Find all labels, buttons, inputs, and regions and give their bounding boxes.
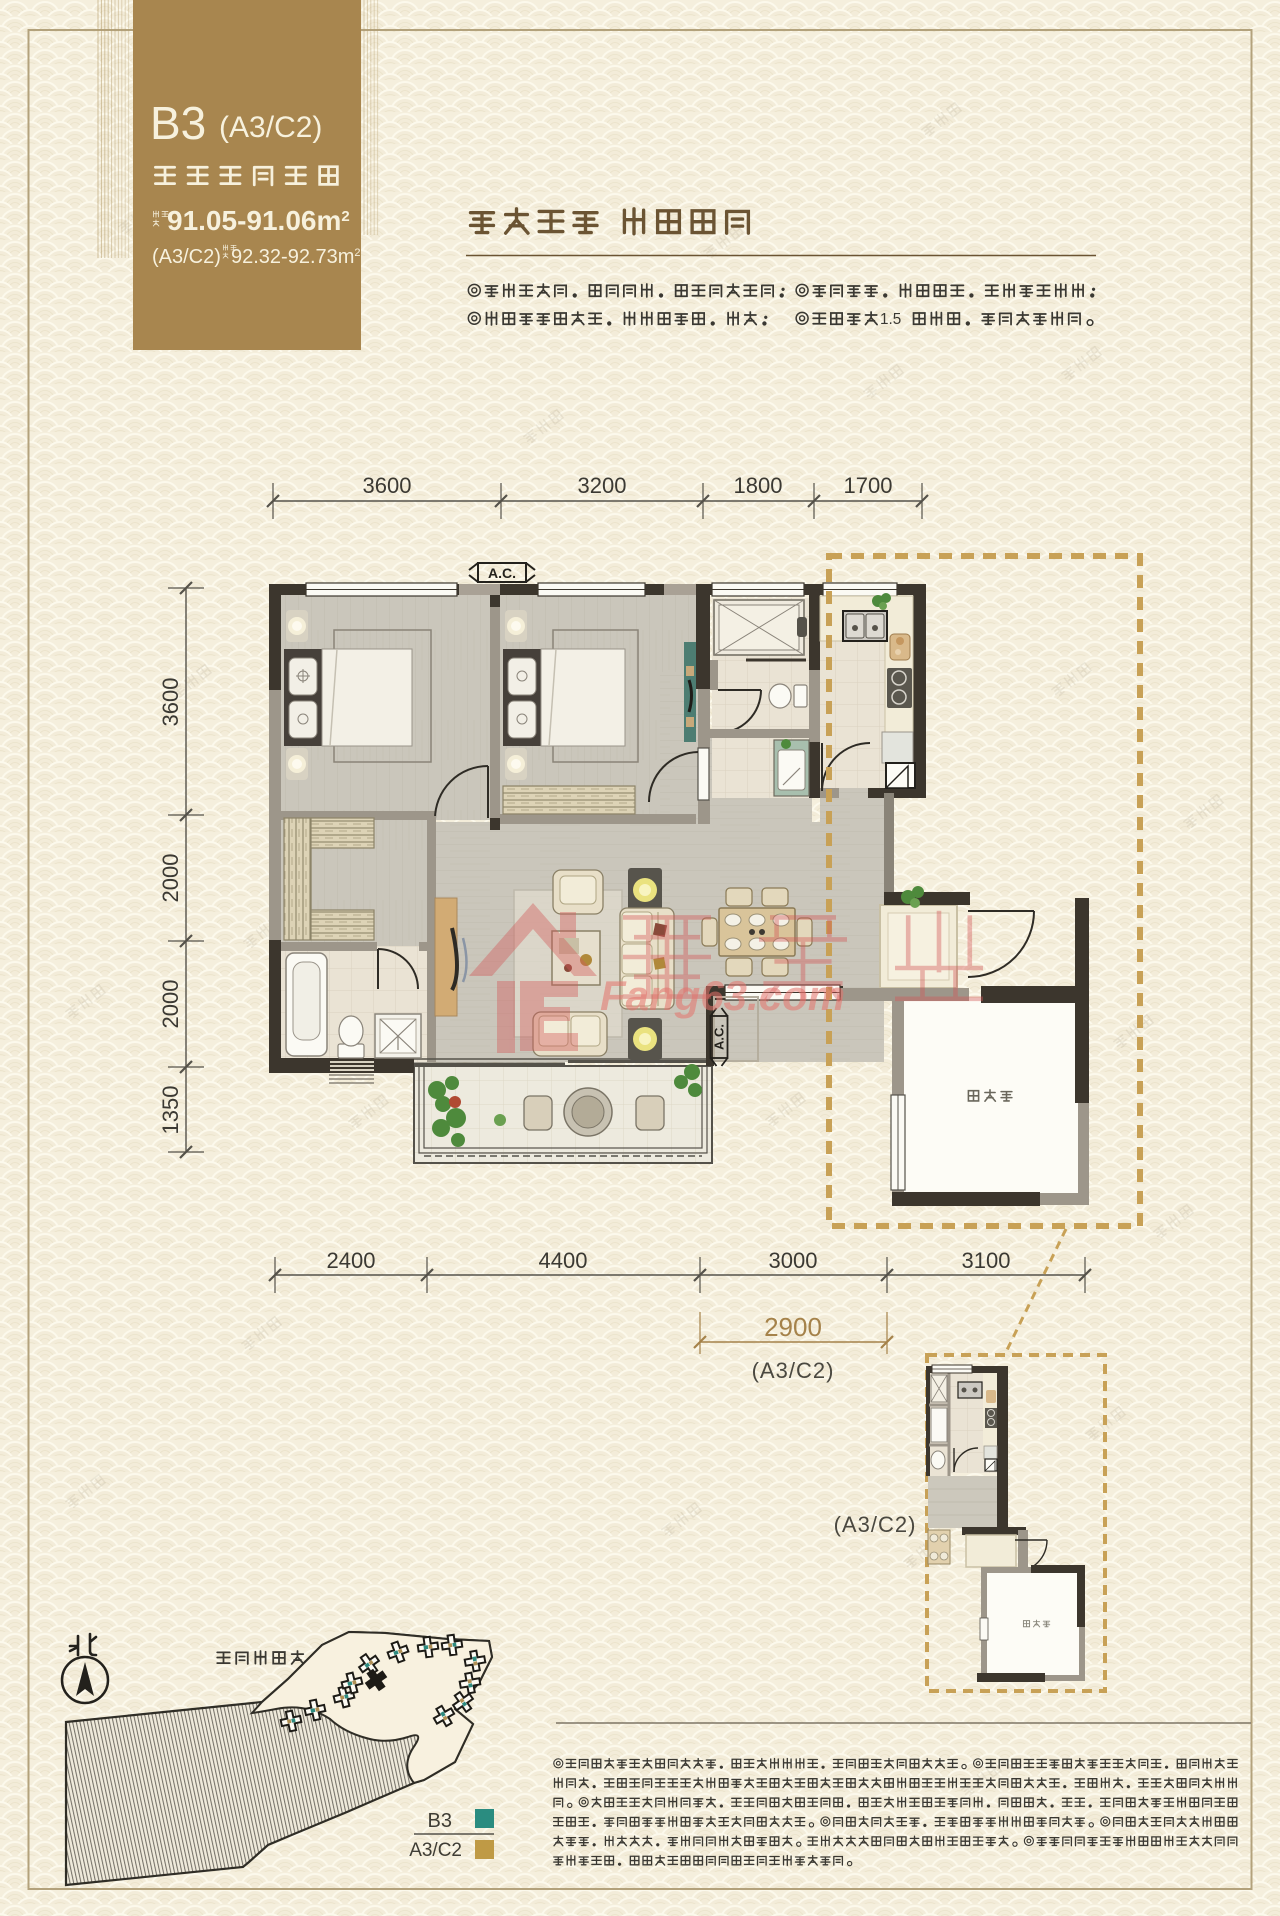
svg-text:2000: 2000 xyxy=(158,854,183,903)
svg-text:Fang63.com: Fang63.com xyxy=(600,972,845,1019)
svg-text:3200: 3200 xyxy=(578,473,627,498)
svg-text:3600: 3600 xyxy=(363,473,412,498)
svg-text:A.C.: A.C. xyxy=(712,1024,727,1050)
svg-text:1700: 1700 xyxy=(844,473,893,498)
svg-text:92.32-92.73m2: 92.32-92.73m2 xyxy=(231,246,361,268)
svg-text:A.C.: A.C. xyxy=(488,565,516,581)
svg-text:91.05-91.06m2: 91.05-91.06m2 xyxy=(167,205,350,236)
svg-text:(A3/C2): (A3/C2) xyxy=(152,246,221,268)
svg-text:2400: 2400 xyxy=(327,1248,376,1273)
svg-text:(A3/C2): (A3/C2) xyxy=(752,1358,835,1383)
svg-text:1.5: 1.5 xyxy=(880,311,901,328)
svg-text:B3: B3 xyxy=(428,1810,452,1832)
svg-text:A3/C2: A3/C2 xyxy=(409,1840,462,1861)
svg-text:(A3/C2): (A3/C2) xyxy=(834,1512,917,1537)
svg-text:2000: 2000 xyxy=(158,980,183,1029)
svg-text:1350: 1350 xyxy=(158,1086,183,1135)
svg-text:3000: 3000 xyxy=(769,1248,818,1273)
svg-text:3600: 3600 xyxy=(158,678,183,727)
svg-text:3100: 3100 xyxy=(962,1248,1011,1273)
svg-text:2900: 2900 xyxy=(764,1312,822,1342)
svg-text:4400: 4400 xyxy=(539,1248,588,1273)
svg-text:1800: 1800 xyxy=(734,473,783,498)
